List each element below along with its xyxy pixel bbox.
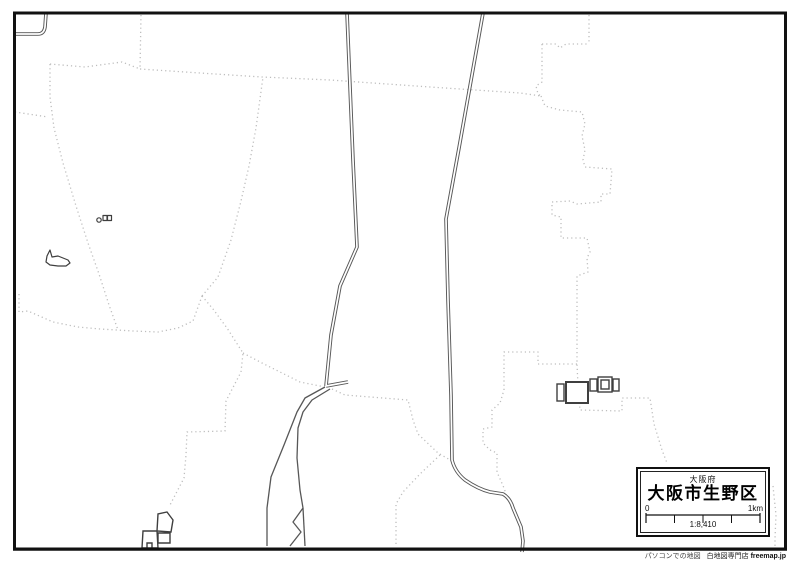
landmark-group	[46, 216, 619, 549]
pond-outline	[46, 250, 70, 266]
building-east-square	[566, 382, 588, 403]
boundary-northwest	[15, 64, 118, 330]
scale-ratio: 1:8,410	[636, 520, 770, 529]
small-square-landmark-1	[103, 216, 107, 221]
ward-title: 大阪市生野区	[648, 484, 759, 503]
building-east-small-2	[613, 379, 619, 391]
credit-tagline: パソコンでの地図	[645, 553, 701, 560]
building-east-narrow	[557, 384, 564, 401]
east-river-core	[446, 13, 523, 552]
credit-line: パソコンでの地図白地図専門店freemap.jp	[645, 551, 786, 561]
west-river-right-bank	[290, 389, 330, 546]
map-page: 大阪府 大阪市生野区 0 1km 1:8,410 パソコンでの地図白地図専門店f…	[0, 0, 800, 565]
corner-channel-core	[14, 13, 46, 34]
scale-left-label: 0	[645, 504, 649, 513]
boundary-north	[50, 15, 541, 96]
building-east-medium-inner	[601, 380, 609, 389]
building-east-small-1	[590, 379, 597, 391]
boundary-south	[332, 389, 452, 546]
corner-channel	[14, 13, 46, 34]
credit-brand: freemap.jp	[751, 553, 786, 560]
small-square-landmark-2	[108, 216, 112, 221]
prefecture-label: 大阪府	[690, 475, 717, 484]
small-circle-landmark	[97, 218, 101, 222]
building-cluster-southwest	[142, 512, 173, 548]
west-river-left-bank	[267, 387, 325, 546]
credit-shop: 白地図専門店	[707, 553, 749, 560]
scale-right-label: 1km	[748, 504, 763, 513]
west-river-right-edge	[303, 508, 305, 546]
boundary-southwest	[19, 77, 325, 505]
river-group	[14, 13, 523, 552]
west-river	[326, 13, 357, 386]
